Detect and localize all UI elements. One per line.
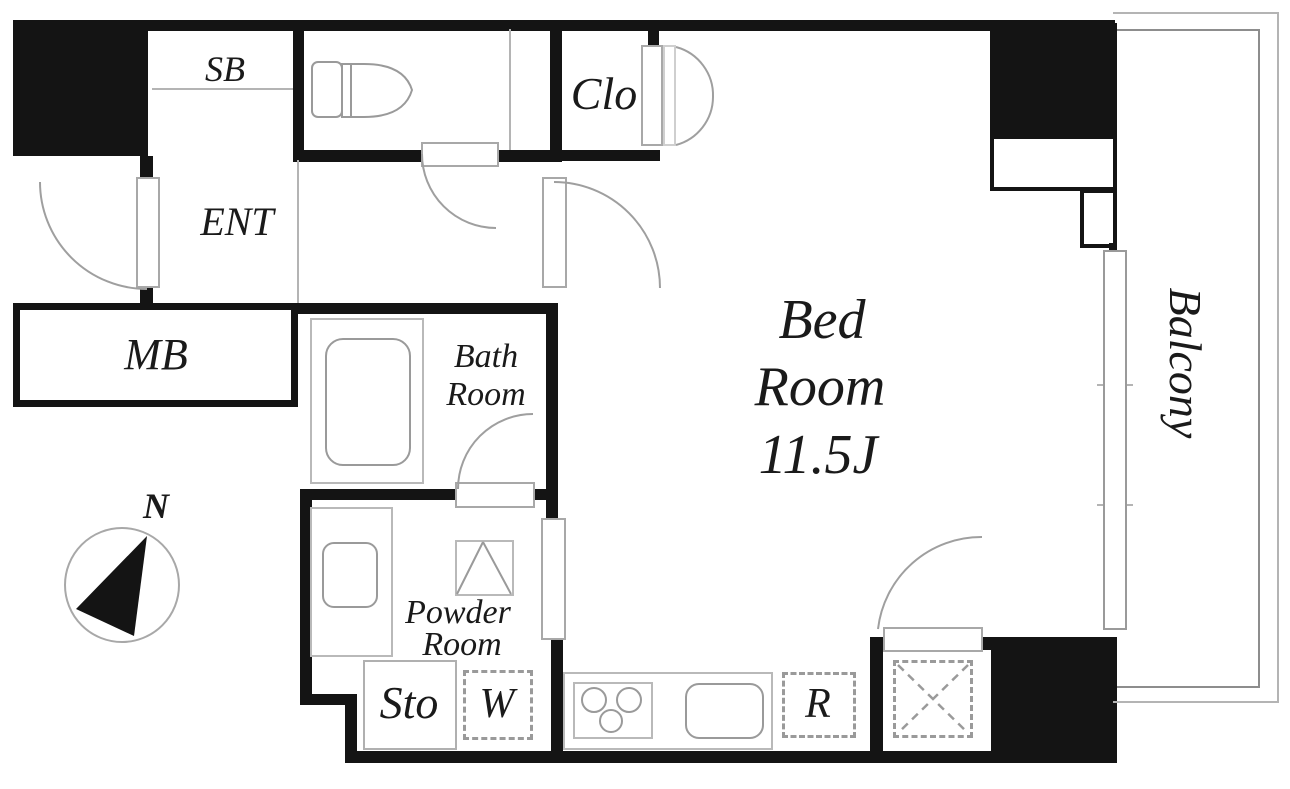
label-powder-room-line1: Powder [405,596,511,630]
label-refrigerator-space: R [805,683,831,725]
toilet-partition-line [509,29,511,150]
window-balcony [1103,250,1127,630]
wall-sb-toilet-divider [293,27,304,156]
ps-door-leaf [883,627,983,652]
wall-kitchen-divider [551,638,563,758]
kitchen-sink-icon [685,683,764,739]
label-storage: Sto [380,680,439,726]
label-meter-box: MB [124,333,188,377]
label-balcony: Balcony [1162,288,1208,439]
label-compass-north: N [143,488,169,524]
bathroom-door-leaf [455,482,535,508]
toilet-tank-icon [311,61,343,118]
compass-needle-icon [76,536,147,636]
label-bedroom-line2: Room [755,359,886,415]
washbasin-box-icon [455,540,514,596]
closet-door-jamb [641,45,663,146]
closet-bifold-arc-upper [676,47,713,97]
label-bathroom-line2: Room [446,378,525,412]
label-bathroom-line1: Bath [454,340,518,374]
wall-toilet-clo-divider [550,23,562,156]
entry-step-line [297,160,299,303]
bathtub-icon [325,338,411,466]
label-closet: Clo [571,71,637,117]
pillar-top-left [13,20,148,156]
wall-bath-right [546,303,558,518]
closet-bifold-arc-lower [676,97,713,145]
wall-step-top-right [1080,189,1117,248]
bedroom-door-leaf [542,177,567,288]
powder-room-sliding-door [541,518,566,640]
pillar-top-right-void [990,135,1117,191]
toilet-door-leaf [421,142,499,167]
toilet-bowl-icon [342,64,412,117]
bathroom-door-swing-arc [458,414,533,489]
pillar-bottom-right [991,637,1117,758]
wall-clo-bottom [550,150,660,161]
wall-ps-left [870,637,883,758]
pillar-top-right [990,23,1117,137]
compass-circle-icon [65,528,179,642]
closet-door-panel [663,45,676,146]
bedroom-door-swing-arc [554,182,660,288]
stove-icon [573,682,653,739]
wall-top [13,20,1115,31]
ps-door-swing-arc [878,537,982,629]
label-bedroom-size: 11.5J [759,427,878,483]
label-washer-space: W [480,683,515,725]
entrance-door-swing-arc [40,182,147,289]
floor-plan: SB ENT Clo MB Bath Room Bed Room 11.5J P… [0,0,1290,789]
wall-powder-jog-vertical [345,694,357,759]
entrance-door-leaf [136,177,160,288]
pipe-space-box [893,660,973,738]
vanity-sink-icon [322,542,378,608]
label-bedroom-line1: Bed [778,292,865,348]
label-entrance: ENT [200,202,273,242]
label-shoe-box: SB [205,51,245,87]
label-powder-room-line2: Room [422,628,501,662]
